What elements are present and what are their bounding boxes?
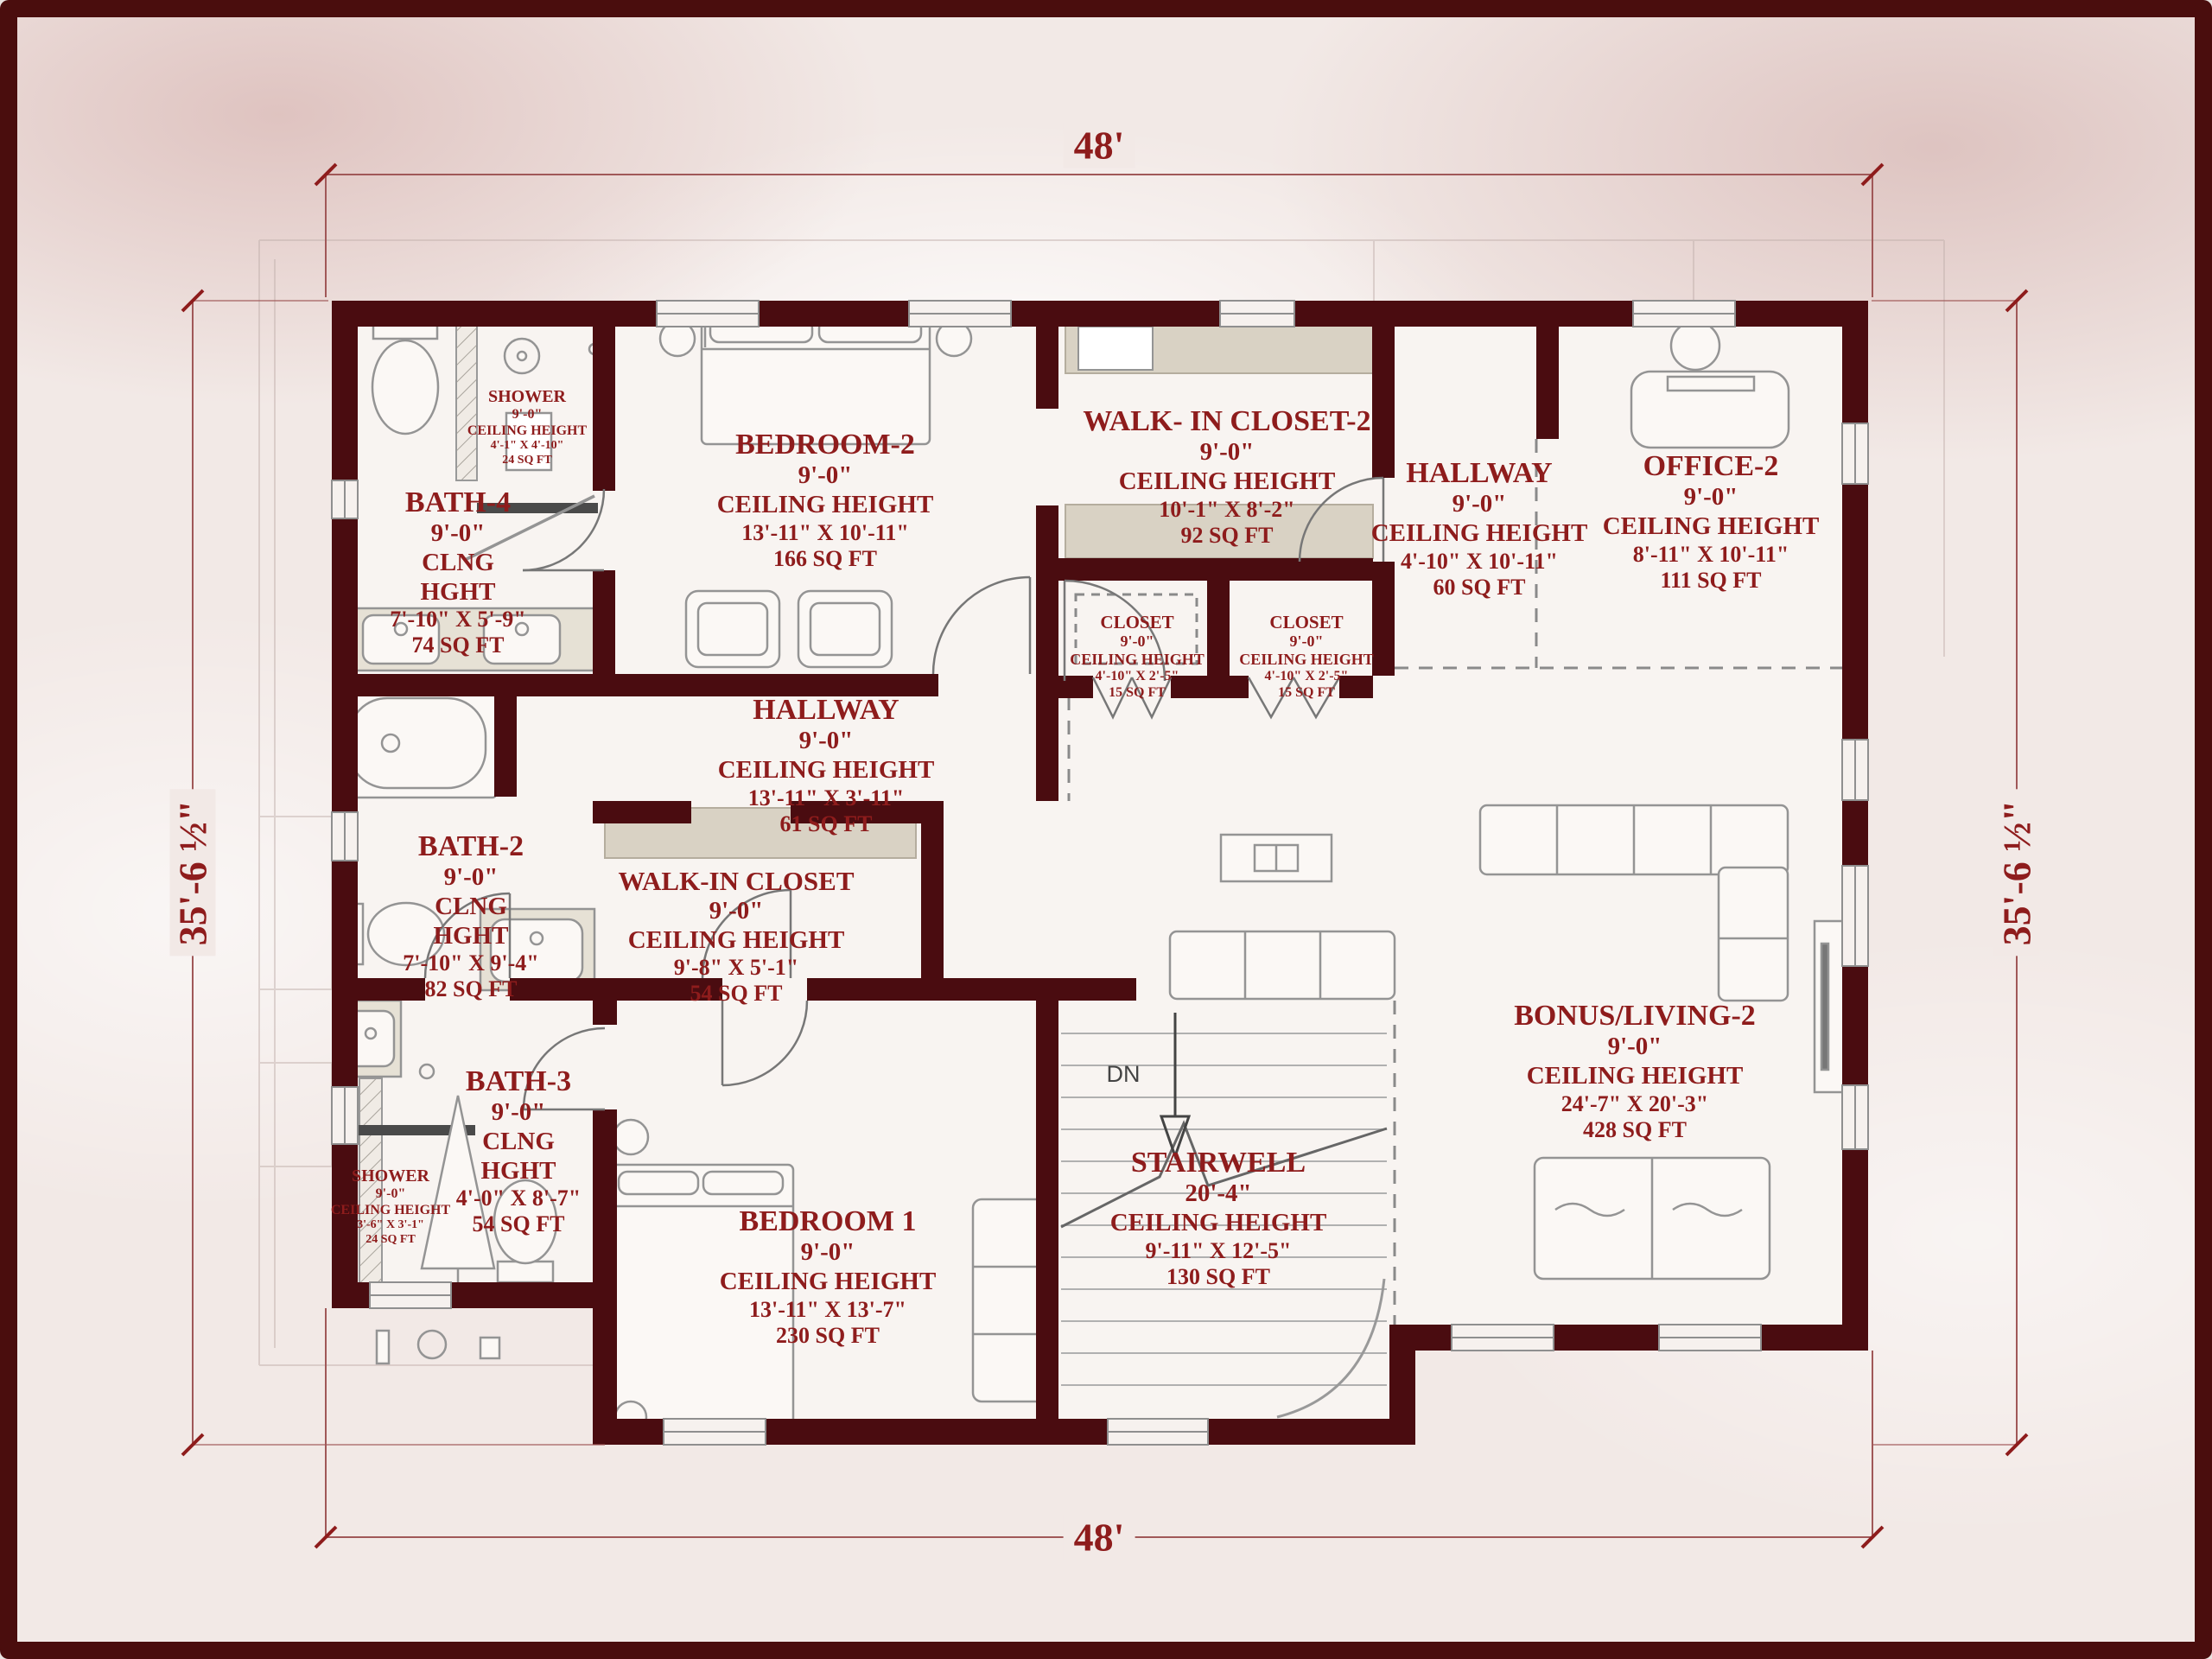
room-label-bedroom2: BEDROOM-2 9'-0" CEILING HEIGHT 13'-11" X… <box>717 428 934 572</box>
dimension-left-label: 35'-6 ½" <box>170 790 216 957</box>
room-label-bath2: BATH-2 9'-0" CLNG HGHT 7'-10" X 9'-4" 82… <box>403 829 538 1003</box>
room-label-office2: OFFICE-2 9'-0" CEILING HEIGHT 8'-11" X 1… <box>1603 449 1820 594</box>
stairs-down-label: DN <box>1107 1061 1141 1087</box>
floor-plan-page: DN <box>0 0 2212 1659</box>
room-label-closet-right: CLOSET 9'-0" CEILING HEIGHT 4'-10" X 2'-… <box>1239 612 1374 701</box>
room-label-closet-left: CLOSET 9'-0" CEILING HEIGHT 4'-10" X 2'-… <box>1070 612 1205 701</box>
bonus-island-table <box>1221 835 1332 881</box>
dimension-right-label: 35'-6 ½" <box>1994 790 2040 957</box>
room-label-bath3: BATH-3 9'-0" CLNG HGHT 4'-0" X 8'-7" 54 … <box>456 1065 581 1238</box>
dimension-top-label: 48' <box>1064 123 1135 168</box>
bath4-toilet <box>372 316 438 434</box>
room-label-bath4: BATH-4 9'-0" CLNG HGHT 7'-10" X 5'-9" 74… <box>390 486 525 659</box>
room-label-walk-in-closet1: WALK-IN CLOSET 9'-0" CEILING HEIGHT 9'-8… <box>618 866 854 1007</box>
bedroom2-bed <box>660 315 971 444</box>
room-label-bedroom1: BEDROOM 1 9'-0" CEILING HEIGHT 13'-11" X… <box>720 1205 937 1349</box>
floor-plan-drawing: DN <box>0 0 2212 1659</box>
room-label-walk-in-closet2: WALK- IN CLOSET-2 9'-0" CEILING HEIGHT 1… <box>1083 404 1370 549</box>
room-label-stairwell: STAIRWELL 20'-4" CEILING HEIGHT 9'-11" X… <box>1110 1146 1327 1290</box>
room-label-shower-bottom: SHOWER 9'-0" CEILING HEIGHT 3'-6" X 3'-1… <box>331 1166 450 1247</box>
dimension-bottom-label: 48' <box>1064 1515 1135 1560</box>
bonus-lounge-chairs <box>1535 1158 1770 1279</box>
bath2-bathtub <box>339 689 496 798</box>
tv-console <box>1815 921 1844 1092</box>
room-label-hallway-main: HALLWAY 9'-0" CEILING HEIGHT 13'-11" X 3… <box>718 693 935 837</box>
room-label-shower-top: SHOWER 9'-0" CEILING HEIGHT 4'-1" X 4'-1… <box>467 387 587 467</box>
bonus-sofa <box>1170 931 1395 999</box>
room-label-hallway-upper: HALLWAY 9'-0" CEILING HEIGHT 4'-10" X 10… <box>1371 456 1588 601</box>
room-label-bonus-living2: BONUS/LIVING-2 9'-0" CEILING HEIGHT 24'-… <box>1514 999 1756 1143</box>
closet-dresser <box>1078 327 1153 370</box>
